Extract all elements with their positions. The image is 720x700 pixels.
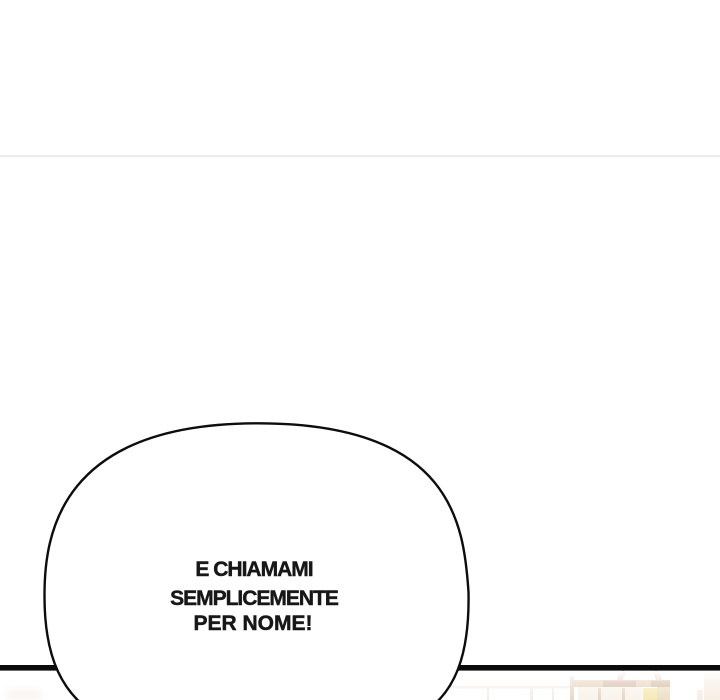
svg-text:PER NOME!: PER NOME!	[193, 612, 312, 635]
svg-text:SEMPLICEMENTE: SEMPLICEMENTE	[170, 587, 339, 610]
svg-text:E CHIAMAMI: E CHIAMAMI	[195, 558, 312, 581]
